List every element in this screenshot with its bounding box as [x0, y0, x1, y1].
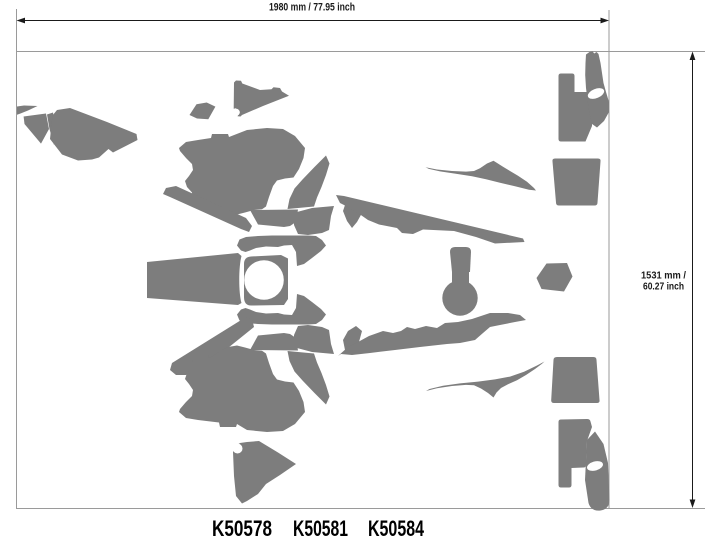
svg-text:60.27 inch: 60.27 inch: [643, 282, 684, 293]
svg-text:1980 mm / 77.95 inch: 1980 mm / 77.95 inch: [269, 2, 355, 14]
svg-text:K50581: K50581: [293, 516, 348, 540]
svg-text:1531 mm /: 1531 mm /: [641, 271, 686, 282]
svg-text:K50584: K50584: [368, 516, 424, 540]
svg-text:K50578: K50578: [212, 516, 272, 540]
